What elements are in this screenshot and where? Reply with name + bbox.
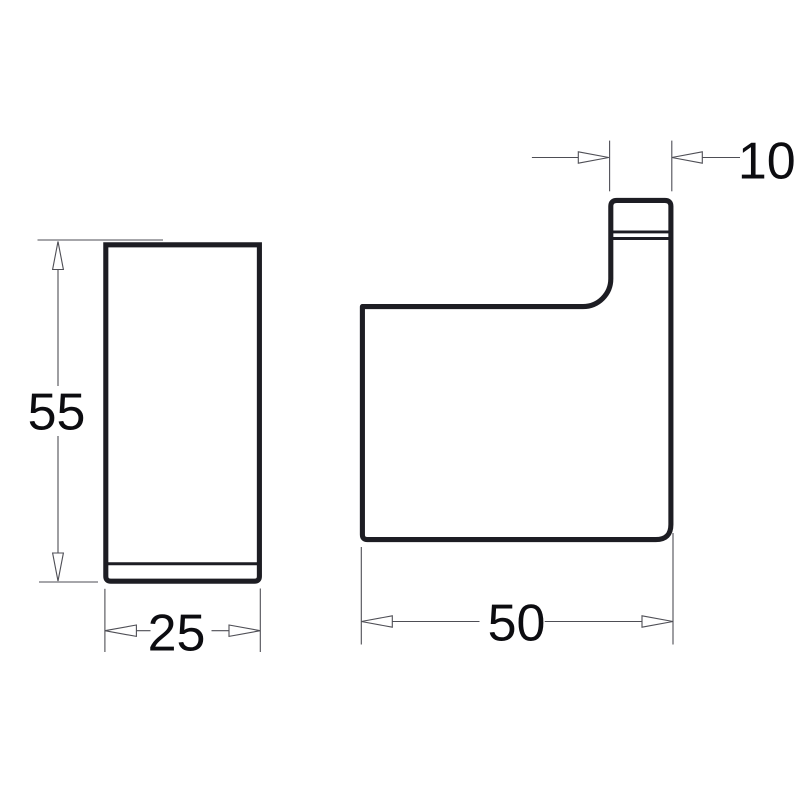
svg-text:25: 25 [148, 605, 206, 663]
svg-text:10: 10 [738, 133, 796, 191]
svg-text:50: 50 [488, 594, 546, 652]
svg-text:55: 55 [28, 384, 86, 442]
